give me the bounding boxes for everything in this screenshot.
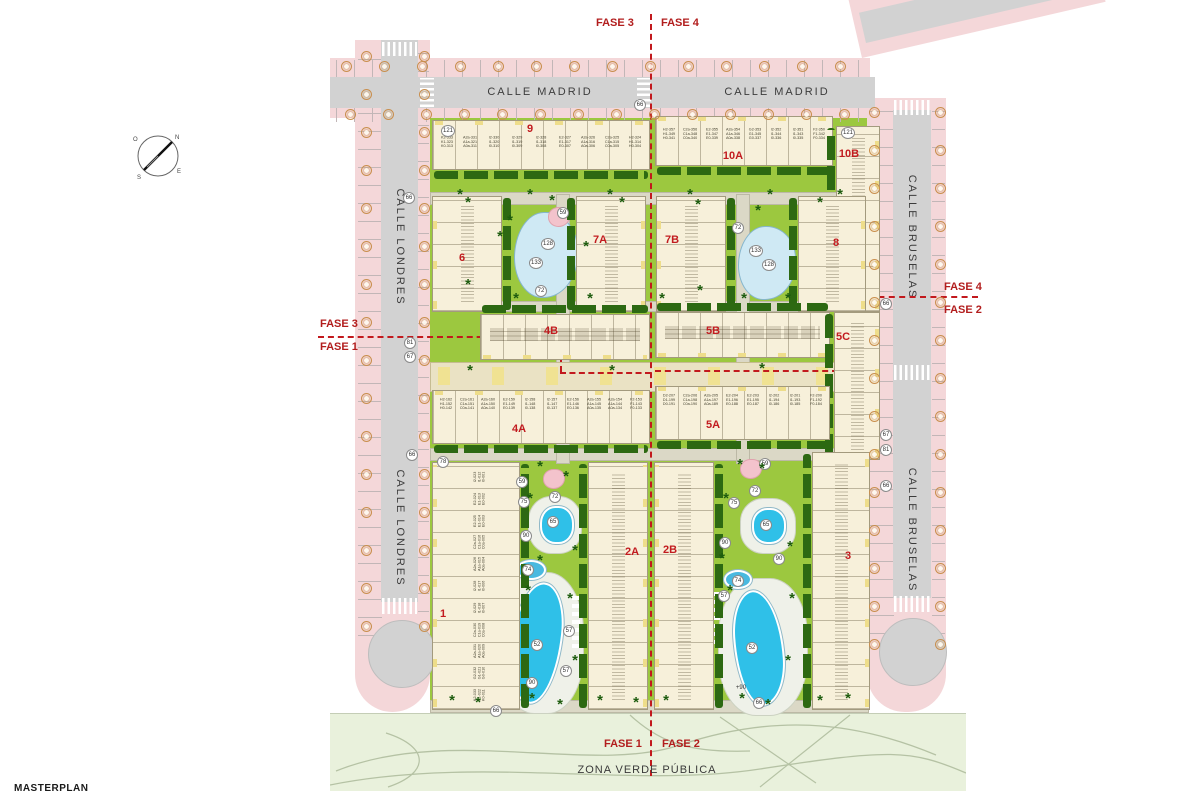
palm-tree-icon: * bbox=[537, 458, 543, 475]
street-tree-icon bbox=[419, 545, 430, 556]
street-tree-icon bbox=[531, 61, 542, 72]
unit-label: I2-329I1-319I0-309 bbox=[512, 136, 523, 149]
street-tree-icon bbox=[645, 61, 656, 72]
street-tree-icon bbox=[419, 241, 430, 252]
street-tree-icon bbox=[361, 89, 372, 100]
unit-label: I2-202I1-194I0-186 bbox=[769, 394, 780, 407]
accent-8 bbox=[861, 199, 865, 309]
unit-label: I2-158I1-148I0-138 bbox=[525, 398, 536, 411]
street-tree-icon bbox=[419, 89, 430, 100]
street-tree-icon bbox=[419, 203, 430, 214]
street-tree-icon bbox=[725, 109, 736, 120]
unit-label: A2a-205A1a-197A0a-189 bbox=[704, 394, 718, 407]
unit-label: I2-351I1-343I0-335 bbox=[792, 128, 803, 141]
palm-tree-icon: * bbox=[537, 552, 543, 569]
unit-label: F2-153F1-143F0-133 bbox=[630, 398, 642, 411]
marker-121: 121 bbox=[841, 127, 855, 139]
street-tree-icon bbox=[935, 145, 946, 156]
street-tree-icon bbox=[869, 487, 880, 498]
calle-bruselas-label-1: CALLE BRUSELAS bbox=[906, 175, 918, 300]
unit-label: C2a-325C1a-315C0a-305 bbox=[605, 136, 619, 149]
block-5A-label: 5A bbox=[706, 419, 720, 431]
street-tree-icon bbox=[417, 61, 428, 72]
palm-tree-icon: * bbox=[587, 290, 593, 307]
street-tree-icon bbox=[493, 61, 504, 72]
accent-1 bbox=[433, 465, 437, 707]
street-tree-icon bbox=[839, 109, 850, 120]
marker-133: 133 bbox=[529, 257, 543, 269]
accent-5B bbox=[658, 353, 827, 357]
unit-label: F2-350F1-342F0-334 bbox=[813, 128, 825, 141]
marker-57: 57 bbox=[560, 665, 572, 677]
unit-label: A2a-331A1a-321A0a-311 bbox=[463, 136, 477, 149]
palm-tree-icon: * bbox=[765, 696, 771, 713]
street-tree-icon bbox=[759, 61, 770, 72]
accent-4A bbox=[435, 391, 647, 395]
marker-74: 74 bbox=[522, 564, 534, 576]
block-3-label: 3 bbox=[845, 550, 851, 562]
fase-2-bottom-label: FASE 2 bbox=[662, 738, 700, 750]
unit-label: H2-324H1-314H0-304 bbox=[629, 136, 641, 149]
street-tree-icon bbox=[361, 355, 372, 366]
marker-78: 78 bbox=[437, 456, 449, 468]
marker-74: 74 bbox=[732, 575, 744, 587]
marker-72: 72 bbox=[549, 491, 561, 503]
zona-verde-publica-label: ZONA VERDE PÚBLICA bbox=[577, 764, 716, 776]
unit-label: I2-028I1-017I0-006 bbox=[473, 581, 486, 592]
bruselas-cul-de-sac bbox=[879, 618, 947, 686]
block-10A-label: 10A bbox=[723, 150, 743, 162]
marker-59: 59 bbox=[516, 476, 528, 488]
unit-label: G2-032G1-021G0-010 bbox=[473, 667, 486, 679]
unit-text-2A bbox=[612, 472, 625, 700]
palm-tree-icon: * bbox=[659, 290, 665, 307]
street-tree-icon bbox=[869, 221, 880, 232]
unit-label: C2a-030C1a-019C0a-008 bbox=[473, 622, 486, 636]
street-tree-icon bbox=[345, 109, 356, 120]
accent-5A bbox=[658, 387, 827, 391]
marker-67: 67 bbox=[880, 429, 892, 441]
street-tree-icon bbox=[459, 109, 470, 120]
street-tree-icon bbox=[361, 431, 372, 442]
street-tree-icon bbox=[361, 469, 372, 480]
palm-tree-icon: * bbox=[741, 290, 747, 307]
marker-72: 72 bbox=[732, 222, 744, 234]
calle-londres-label-2: CALLE LONDRES bbox=[394, 469, 406, 586]
palm-tree-icon: * bbox=[633, 694, 639, 711]
compass-rose: N E S O bbox=[129, 127, 187, 185]
street-tree-icon bbox=[419, 355, 430, 366]
street-tree-icon bbox=[869, 183, 880, 194]
palm-tree-icon: * bbox=[697, 282, 703, 299]
marker-59: 59 bbox=[557, 207, 569, 219]
marker-66: 66 bbox=[403, 192, 415, 204]
unit-label: K2-333K1-323K0-313 bbox=[441, 136, 453, 149]
unit-label: H2-162H1-152H0-142 bbox=[439, 398, 451, 411]
unit-text-8 bbox=[826, 206, 839, 302]
unit-text-5B bbox=[665, 326, 820, 339]
unit-label: E2-159E1-149E0-139 bbox=[503, 398, 515, 411]
street-tree-icon bbox=[721, 61, 732, 72]
palm-tree-icon: * bbox=[739, 690, 745, 707]
unit-label: C2a-206C1a-198C0a-190 bbox=[683, 394, 697, 407]
marker-81: 81 bbox=[404, 337, 416, 349]
unit-label: A2a-160A1a-150A0a-140 bbox=[481, 398, 495, 411]
marker-121: 121 bbox=[441, 125, 455, 137]
block-9-label: 9 bbox=[527, 123, 533, 135]
phase-line-vertical bbox=[650, 14, 652, 776]
marker-128: 128 bbox=[762, 259, 776, 271]
street-tree-icon bbox=[935, 639, 946, 650]
street-tree-icon bbox=[935, 373, 946, 384]
block-5C-label: 5C bbox=[836, 331, 850, 343]
palm-tree-icon: * bbox=[755, 202, 761, 219]
marker-128: 128 bbox=[541, 238, 555, 250]
marker-66: 66 bbox=[490, 705, 502, 717]
crosswalk bbox=[382, 598, 417, 614]
palm-tree-icon: * bbox=[497, 228, 503, 245]
palm-tree-icon: * bbox=[465, 194, 471, 211]
street-tree-icon bbox=[935, 183, 946, 194]
crosswalk bbox=[894, 596, 930, 612]
accent-6 bbox=[433, 199, 437, 309]
unit-label: I2-029I1-018I0-007 bbox=[473, 603, 486, 614]
street-tree-icon bbox=[801, 109, 812, 120]
street-tree-icon bbox=[687, 109, 698, 120]
unit-label: A2a-154A1a-144A0a-134 bbox=[608, 398, 622, 411]
unit-label: F2-200F1-192F0-184 bbox=[811, 394, 823, 407]
marker-90: 90 bbox=[773, 553, 785, 565]
palm-tree-icon: * bbox=[609, 362, 615, 379]
unit-label: A2a-326A1a-316A0a-306 bbox=[581, 136, 595, 149]
street-tree-icon bbox=[361, 507, 372, 518]
marker-57: 57 bbox=[563, 625, 575, 637]
palm-tree-icon: * bbox=[549, 192, 555, 209]
compass-s: S bbox=[137, 175, 141, 181]
marker-66: 66 bbox=[880, 298, 892, 310]
accent-10B bbox=[875, 129, 879, 309]
palm-tree-icon: * bbox=[457, 186, 463, 203]
street-tree-icon bbox=[361, 51, 372, 62]
marker-81: 81 bbox=[880, 444, 892, 456]
hedge-3 bbox=[803, 454, 811, 708]
unit-text-4B bbox=[490, 328, 640, 341]
street-tree-icon bbox=[419, 507, 430, 518]
palm-tree-icon: * bbox=[563, 468, 569, 485]
accent-2B bbox=[655, 465, 659, 707]
unit-label: H2-357H1-349H0-341 bbox=[663, 128, 675, 141]
palm-tree-icon: * bbox=[687, 186, 693, 203]
unit-label: G2-353G1-345G0-337 bbox=[749, 128, 761, 141]
street-tree-icon bbox=[419, 469, 430, 480]
palm-tree-icon: * bbox=[525, 582, 531, 599]
street-tree-icon bbox=[341, 61, 352, 72]
palm-tree-icon: * bbox=[789, 590, 795, 607]
block-10B-label: 10B bbox=[839, 148, 859, 160]
street-tree-icon bbox=[935, 107, 946, 118]
unit-label: A2a-354A1a-346A0a-338 bbox=[726, 128, 740, 141]
palm-tree-icon: * bbox=[695, 196, 701, 213]
marker-66: 66 bbox=[753, 697, 765, 709]
palm-tree-icon: * bbox=[619, 194, 625, 211]
street-tree-icon bbox=[869, 107, 880, 118]
marker-65: 65 bbox=[547, 516, 559, 528]
unit-label: I2-328I1-318I0-308 bbox=[536, 136, 547, 149]
palm-tree-icon: * bbox=[597, 692, 603, 709]
street-tree-icon bbox=[419, 127, 430, 138]
calle-londres-label-1: CALLE LONDRES bbox=[394, 188, 406, 305]
zona-verde-paths bbox=[330, 713, 966, 790]
street-tree-icon bbox=[419, 583, 430, 594]
palm-tree-icon: * bbox=[572, 652, 578, 669]
marker-52: 52 bbox=[746, 642, 758, 654]
unit-label: E2-355E1-347E0-339 bbox=[706, 128, 718, 141]
fase-1-left-label: FASE 1 bbox=[320, 341, 358, 353]
palm-tree-icon: * bbox=[583, 238, 589, 255]
street-tree-icon bbox=[935, 411, 946, 422]
palm-tree-icon: * bbox=[513, 290, 519, 307]
palm-tree-icon: * bbox=[785, 290, 791, 307]
marker-75: 75 bbox=[728, 497, 740, 509]
fase-3-left-label: FASE 3 bbox=[320, 318, 358, 330]
unit-label: I2-023I1-012I0-001 bbox=[473, 472, 486, 483]
street-tree-icon bbox=[361, 127, 372, 138]
street-tree-icon bbox=[683, 61, 694, 72]
unit-label: E2-204E1-196E0-188 bbox=[726, 394, 738, 407]
block-4B-label: 4B bbox=[544, 325, 558, 337]
street-tree-icon bbox=[869, 297, 880, 308]
hedge-7B bbox=[727, 198, 735, 310]
street-tree-icon bbox=[361, 279, 372, 290]
accent-9 bbox=[435, 121, 647, 125]
street-tree-icon bbox=[379, 61, 390, 72]
block-2B-label: 2B bbox=[663, 544, 677, 556]
street-tree-icon bbox=[419, 621, 430, 632]
street-tree-icon bbox=[869, 373, 880, 384]
palm-tree-icon: * bbox=[663, 692, 669, 709]
street-tree-icon bbox=[763, 109, 774, 120]
street-tree-icon bbox=[869, 601, 880, 612]
palm-tree-icon: * bbox=[475, 694, 481, 711]
street-tree-icon bbox=[419, 393, 430, 404]
street-tree-icon bbox=[935, 449, 946, 460]
street-tree-icon bbox=[535, 109, 546, 120]
calle-bruselas-label-2: CALLE BRUSELAS bbox=[906, 468, 918, 593]
masterplan-canvas: CALLE MADRID CALLE MADRID CALLE LONDRES … bbox=[0, 0, 1200, 800]
crosswalk bbox=[894, 100, 930, 115]
palm-tree-icon: * bbox=[767, 186, 773, 203]
unit-text-3 bbox=[835, 462, 848, 700]
street-tree-icon bbox=[869, 411, 880, 422]
street-tree-icon bbox=[797, 61, 808, 72]
palm-tree-icon: * bbox=[572, 542, 578, 559]
unit-text-2B bbox=[678, 472, 691, 700]
street-tree-icon bbox=[361, 165, 372, 176]
block-4A-label: 4A bbox=[512, 423, 526, 435]
street-tree-icon bbox=[497, 109, 508, 120]
street-tree-icon bbox=[455, 61, 466, 72]
street-tree-icon bbox=[869, 449, 880, 460]
palm-tree-icon: * bbox=[723, 490, 729, 507]
palm-tree-icon: * bbox=[467, 362, 473, 379]
palm-tree-icon: * bbox=[529, 690, 535, 707]
street-tree-icon bbox=[935, 487, 946, 498]
compass-o: O bbox=[133, 137, 138, 143]
marker-90: 90 bbox=[520, 530, 532, 542]
unit-label: E2-024E1-013E0-002 bbox=[473, 493, 486, 505]
street-tree-icon bbox=[419, 431, 430, 442]
palm-tree-icon: * bbox=[567, 590, 573, 607]
unit-text-7A bbox=[605, 206, 618, 302]
street-tree-icon bbox=[419, 317, 430, 328]
palm-tree-icon: * bbox=[787, 538, 793, 555]
page-title: MASTERPLAN bbox=[14, 783, 88, 794]
calle-madrid-label-2: CALLE MADRID bbox=[724, 86, 829, 98]
accent-4B bbox=[483, 355, 647, 359]
block-7A-label: 7A bbox=[593, 234, 607, 246]
palm-tree-icon: * bbox=[737, 456, 743, 473]
fase-2-right-label: FASE 2 bbox=[944, 304, 982, 316]
block-10A bbox=[655, 116, 833, 166]
marker-67: 67 bbox=[404, 351, 416, 363]
fase-3-top-label: FASE 3 bbox=[596, 17, 634, 29]
street-tree-icon bbox=[935, 601, 946, 612]
unit-label: E2-156E1-146E0-136 bbox=[567, 398, 579, 411]
compass-n: N bbox=[175, 135, 179, 141]
palm-tree-icon: * bbox=[817, 692, 823, 709]
unit-label: I2-201I1-193I0-185 bbox=[790, 394, 801, 407]
street-tree-icon bbox=[419, 51, 430, 62]
street-tree-icon bbox=[935, 525, 946, 536]
street-tree-icon bbox=[607, 61, 618, 72]
palm-tree-icon: * bbox=[557, 696, 563, 713]
unit-label: E2-025E1-014E0-003 bbox=[473, 515, 486, 527]
street-tree-icon bbox=[835, 61, 846, 72]
unit-text-5C bbox=[851, 322, 864, 450]
palm-tree-icon: * bbox=[837, 186, 843, 203]
crosswalk bbox=[382, 42, 417, 56]
street-tree-icon bbox=[361, 621, 372, 632]
block-1-label: 1 bbox=[440, 608, 446, 620]
block-6-label: 6 bbox=[459, 252, 465, 264]
compass-e: E bbox=[177, 169, 181, 175]
accent-7A bbox=[641, 199, 645, 309]
block-7B-label: 7B bbox=[665, 234, 679, 246]
unit-label: A2a-026A1a-015A0a-004 bbox=[473, 557, 486, 571]
hedge-2B bbox=[715, 464, 723, 708]
palm-tree-icon: * bbox=[845, 690, 851, 707]
fase-4-right-label: FASE 4 bbox=[944, 281, 982, 293]
street-tree-icon bbox=[869, 259, 880, 270]
block-8-label: 8 bbox=[833, 237, 839, 249]
marker-66: 66 bbox=[406, 449, 418, 461]
palm-tree-icon: * bbox=[759, 460, 765, 477]
hedge-5A bbox=[657, 441, 828, 449]
phase-line-axis-west bbox=[560, 372, 651, 374]
unit-label: E2-203E1-195E0-187 bbox=[747, 394, 759, 407]
hedge-2A bbox=[579, 464, 587, 708]
marker-90: 90 bbox=[719, 537, 731, 549]
palm-tree-icon: * bbox=[527, 186, 533, 203]
street-tree-icon bbox=[421, 109, 432, 120]
marker-90: 90 bbox=[526, 677, 538, 689]
street-tree-icon bbox=[935, 335, 946, 346]
hedge-9 bbox=[434, 171, 648, 179]
street-tree-icon bbox=[419, 279, 430, 290]
calle-madrid-label-1: CALLE MADRID bbox=[487, 86, 592, 98]
marker-133: 133 bbox=[749, 245, 763, 257]
street-tree-icon bbox=[935, 221, 946, 232]
street-tree-icon bbox=[361, 317, 372, 328]
street-tree-icon bbox=[649, 109, 660, 120]
phase-line-axis-east bbox=[655, 370, 838, 372]
hedge-4B bbox=[482, 305, 648, 313]
street-tree-icon bbox=[361, 241, 372, 252]
street-tree-icon bbox=[869, 145, 880, 156]
palm-tree-icon: * bbox=[727, 582, 733, 599]
street-tree-icon bbox=[383, 109, 394, 120]
palm-tree-icon: * bbox=[449, 692, 455, 709]
palm-tree-icon: * bbox=[607, 186, 613, 203]
marker-72: 72 bbox=[749, 485, 761, 497]
street-tree-icon bbox=[869, 639, 880, 650]
unit-label: A2a-031A1a-020A0a-009 bbox=[473, 644, 486, 658]
unit-label: C2a-027C1a-016C0a-005 bbox=[473, 535, 486, 549]
street-tree-icon bbox=[935, 563, 946, 574]
marker-72: 72 bbox=[535, 285, 547, 297]
street-tree-icon bbox=[419, 165, 430, 176]
unit-label: I2-157I1-147I0-137 bbox=[546, 398, 557, 411]
palm-tree-icon: * bbox=[785, 652, 791, 669]
palm-tree-icon: * bbox=[527, 490, 533, 507]
unit-label: I2-352I1-344I0-336 bbox=[771, 128, 782, 141]
unit-label: C2a-161C1a-151C0a-141 bbox=[460, 398, 474, 411]
street-tree-icon bbox=[869, 563, 880, 574]
hedge-4A bbox=[434, 445, 648, 453]
street-tree-icon bbox=[869, 525, 880, 536]
street-tree-icon bbox=[611, 109, 622, 120]
street-tree-icon bbox=[361, 545, 372, 556]
street-tree-icon bbox=[361, 203, 372, 214]
palm-tree-icon: * bbox=[759, 360, 765, 377]
block-2A-label: 2A bbox=[625, 546, 639, 558]
marker-65: 65 bbox=[760, 519, 772, 531]
street-tree-icon bbox=[569, 61, 580, 72]
unit-label: D2-207D1-199D0-191 bbox=[662, 394, 674, 407]
fase-4-top-label: FASE 4 bbox=[661, 17, 699, 29]
street-tree-icon bbox=[935, 259, 946, 270]
unit-label: I2-330I1-320I0-310 bbox=[489, 136, 500, 149]
hedge-10A bbox=[657, 167, 831, 175]
street-tree-icon bbox=[361, 583, 372, 594]
accent-2A bbox=[643, 465, 647, 707]
unit-label: E2-327E1-317E0-307 bbox=[559, 136, 571, 149]
unit-label: C2a-356C1a-348C0a-340 bbox=[683, 128, 697, 141]
street-tree-icon bbox=[869, 335, 880, 346]
street-tree-icon bbox=[935, 297, 946, 308]
street-tree-icon bbox=[361, 393, 372, 404]
unit-label: A2a-155A1a-145A0a-135 bbox=[587, 398, 601, 411]
fase-1-bottom-label: FASE 1 bbox=[604, 738, 642, 750]
crosswalk bbox=[894, 365, 930, 380]
block-5B-label: 5B bbox=[706, 325, 720, 337]
palm-tree-icon: * bbox=[817, 194, 823, 211]
unit-text-7B bbox=[685, 206, 698, 302]
block-5A bbox=[655, 386, 830, 440]
marker-66: 66 bbox=[880, 480, 892, 492]
palm-tree-icon: * bbox=[719, 550, 725, 567]
marker-52: 52 bbox=[531, 639, 543, 651]
